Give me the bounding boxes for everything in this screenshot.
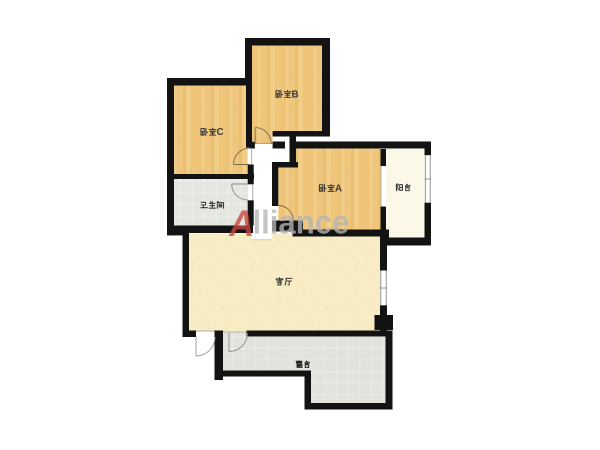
svg-text:A: A bbox=[335, 183, 342, 194]
svg-text:C: C bbox=[216, 127, 223, 138]
svg-text:lliance: lliance bbox=[252, 204, 349, 241]
svg-text:B: B bbox=[291, 89, 298, 100]
svg-text:A: A bbox=[228, 203, 254, 244]
